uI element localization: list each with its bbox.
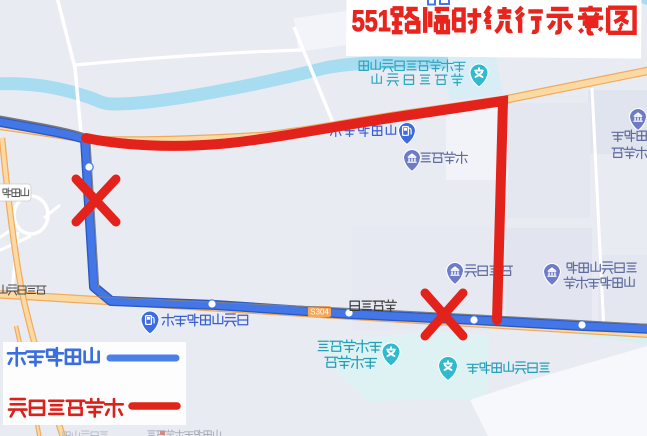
svg-text:551: 551 bbox=[352, 4, 391, 37]
svg-text:S304: S304 bbox=[310, 308, 329, 317]
